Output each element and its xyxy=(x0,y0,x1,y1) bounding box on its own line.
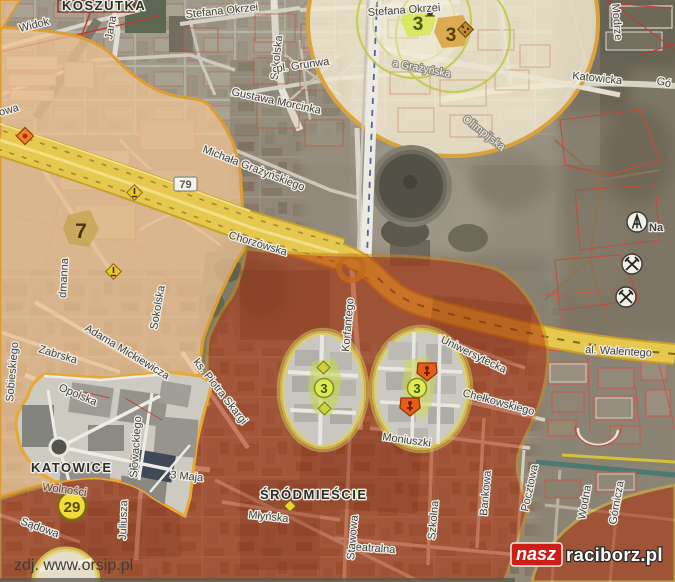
svg-text:zdj. www.orsip.pl: zdj. www.orsip.pl xyxy=(14,557,133,574)
svg-text:Juliusza: Juliusza xyxy=(117,499,130,540)
svg-text:29: 29 xyxy=(64,499,81,516)
svg-text:KOSZUTKA: KOSZUTKA xyxy=(62,0,146,13)
svg-text:dmanna: dmanna xyxy=(57,257,71,298)
svg-text:3: 3 xyxy=(446,25,457,46)
svg-text:raciborz.pl: raciborz.pl xyxy=(566,544,663,565)
svg-text:ŚRÓDMIEŚCIE: ŚRÓDMIEŚCIE xyxy=(260,487,368,502)
svg-text:nasz: nasz xyxy=(516,544,556,564)
svg-text:Na: Na xyxy=(649,222,664,234)
svg-text:3: 3 xyxy=(413,14,424,35)
svg-text:3: 3 xyxy=(413,381,420,396)
svg-text:KATOWICE: KATOWICE xyxy=(31,460,113,475)
svg-text:7: 7 xyxy=(75,220,87,243)
svg-text:3: 3 xyxy=(320,381,327,396)
svg-text:79: 79 xyxy=(179,179,191,191)
